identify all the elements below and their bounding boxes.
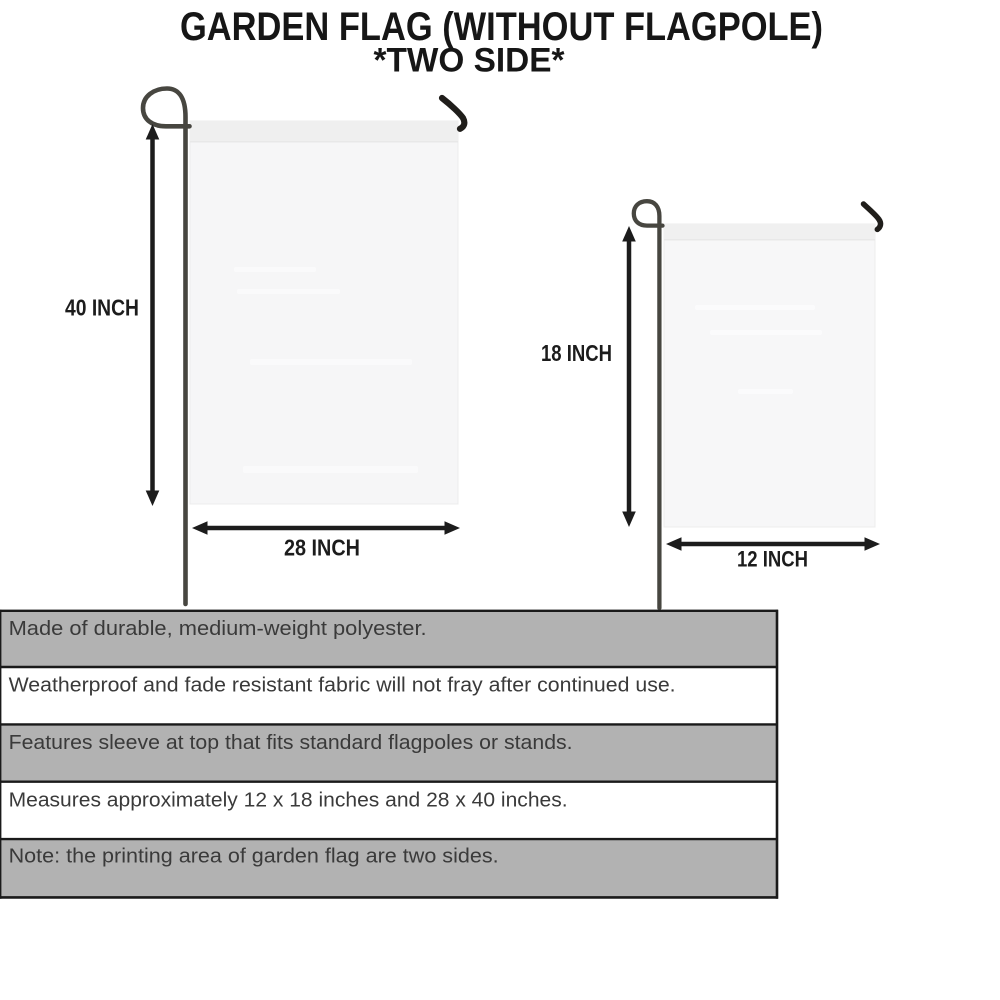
svg-text:Features sleeve at top that fi: Features sleeve at top that fits standar… [9,732,573,754]
svg-text:28 INCH: 28 INCH [284,535,360,561]
svg-text:Weatherproof and fade resistan: Weatherproof and fade resistant fabric w… [9,675,676,697]
svg-text:Note: the printing area of gar: Note: the printing area of garden flag a… [9,846,499,868]
svg-text:18 INCH: 18 INCH [541,340,612,366]
svg-text:40 INCH: 40 INCH [65,295,139,321]
svg-text:Made of durable, medium-weight: Made of durable, medium-weight polyester… [9,618,427,640]
svg-text:*TWO SIDE*: *TWO SIDE* [374,41,566,79]
svg-text:12 INCH: 12 INCH [737,547,808,572]
svg-text:Measures approximately 12 x 18: Measures approximately 12 x 18 inches an… [9,789,568,811]
